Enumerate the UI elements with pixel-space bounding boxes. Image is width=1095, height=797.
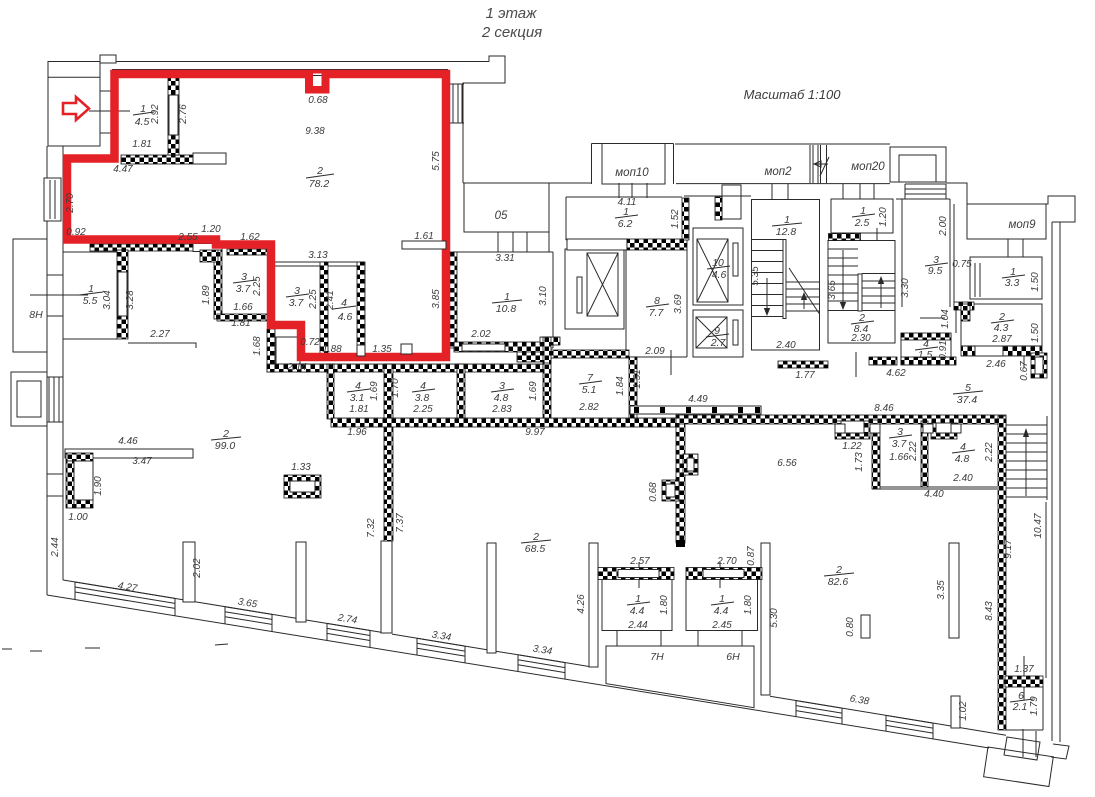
svg-text:2.14: 2.14 xyxy=(286,362,307,373)
svg-text:8Н: 8Н xyxy=(29,309,43,321)
svg-text:моп9: моп9 xyxy=(1008,219,1036,231)
svg-text:моп10: моп10 xyxy=(615,167,649,179)
svg-text:1.73: 1.73 xyxy=(854,452,865,472)
svg-text:9.5: 9.5 xyxy=(928,265,943,277)
svg-text:4.6: 4.6 xyxy=(338,311,353,323)
svg-text:5.35: 5.35 xyxy=(750,266,761,286)
svg-text:4.26: 4.26 xyxy=(576,594,587,614)
svg-text:10.8: 10.8 xyxy=(496,303,517,315)
svg-text:4.8: 4.8 xyxy=(494,392,509,404)
svg-text:2.25: 2.25 xyxy=(308,289,319,310)
svg-text:2.22: 2.22 xyxy=(984,442,995,463)
svg-text:0.91: 0.91 xyxy=(938,340,949,359)
svg-text:9.38: 9.38 xyxy=(305,126,325,137)
svg-text:7.32: 7.32 xyxy=(366,518,377,538)
svg-text:1.50: 1.50 xyxy=(1030,272,1041,292)
svg-text:3.8: 3.8 xyxy=(415,392,430,404)
svg-text:2.09: 2.09 xyxy=(644,346,665,357)
svg-text:12.8: 12.8 xyxy=(776,226,797,238)
svg-text:4.8: 4.8 xyxy=(955,453,970,465)
svg-text:1.81: 1.81 xyxy=(132,139,151,150)
svg-text:2: 2 xyxy=(316,165,323,177)
svg-text:1.00: 1.00 xyxy=(68,512,88,523)
svg-text:9.17: 9.17 xyxy=(1003,539,1014,559)
svg-text:2.00: 2.00 xyxy=(938,216,949,237)
svg-text:6Н: 6Н xyxy=(726,651,740,663)
svg-text:99.0: 99.0 xyxy=(215,440,236,452)
svg-text:2.5: 2.5 xyxy=(854,217,870,229)
svg-text:5.5: 5.5 xyxy=(83,295,98,307)
svg-text:05: 05 xyxy=(495,210,508,222)
svg-text:1.69: 1.69 xyxy=(369,381,380,401)
svg-text:7.37: 7.37 xyxy=(395,513,406,533)
svg-text:2.70: 2.70 xyxy=(716,556,737,567)
svg-text:2.57: 2.57 xyxy=(629,556,650,567)
svg-text:3.10: 3.10 xyxy=(538,286,549,306)
svg-text:1.04: 1.04 xyxy=(940,309,951,329)
svg-text:2.92: 2.92 xyxy=(150,104,161,125)
svg-text:2.27: 2.27 xyxy=(149,329,170,340)
svg-text:0.92: 0.92 xyxy=(66,227,86,238)
svg-text:2.40: 2.40 xyxy=(775,340,796,351)
svg-text:4.40: 4.40 xyxy=(924,489,944,500)
svg-text:2.44: 2.44 xyxy=(50,537,61,558)
svg-text:1.88: 1.88 xyxy=(322,344,342,355)
svg-text:1.20: 1.20 xyxy=(878,207,889,227)
svg-text:2.82: 2.82 xyxy=(578,402,599,413)
svg-text:1.66: 1.66 xyxy=(233,302,253,313)
svg-text:1.68: 1.68 xyxy=(252,336,263,356)
svg-text:2.25: 2.25 xyxy=(412,404,433,415)
svg-text:3.7: 3.7 xyxy=(236,283,252,295)
svg-text:1.20: 1.20 xyxy=(201,224,221,235)
svg-text:3.7: 3.7 xyxy=(289,297,305,309)
svg-text:7Н: 7Н xyxy=(650,651,664,663)
svg-text:5.75: 5.75 xyxy=(431,151,442,171)
svg-text:2.83: 2.83 xyxy=(491,404,512,415)
svg-text:3.30: 3.30 xyxy=(900,278,911,298)
svg-text:0.80: 0.80 xyxy=(845,617,856,637)
svg-text:3.1: 3.1 xyxy=(350,392,365,404)
svg-text:4.3: 4.3 xyxy=(994,322,1009,334)
svg-text:2.55: 2.55 xyxy=(177,232,198,243)
svg-text:6.56: 6.56 xyxy=(777,458,797,469)
svg-text:1 этаж: 1 этаж xyxy=(486,5,538,22)
svg-text:2.46: 2.46 xyxy=(985,359,1006,370)
svg-text:7.7: 7.7 xyxy=(649,307,665,319)
svg-text:1.61: 1.61 xyxy=(414,231,433,242)
svg-text:3.31: 3.31 xyxy=(495,253,514,264)
svg-text:3.65: 3.65 xyxy=(827,280,838,300)
svg-text:2.22: 2.22 xyxy=(908,441,919,462)
svg-text:3.35: 3.35 xyxy=(936,580,947,600)
svg-text:1.90: 1.90 xyxy=(93,476,104,496)
svg-text:2.40: 2.40 xyxy=(952,473,973,484)
svg-text:2.44: 2.44 xyxy=(627,620,648,631)
svg-text:1.50: 1.50 xyxy=(1030,323,1041,343)
svg-text:2 секция: 2 секция xyxy=(481,24,542,41)
svg-text:3.13: 3.13 xyxy=(308,250,328,261)
svg-text:2.02: 2.02 xyxy=(470,329,491,340)
svg-text:1.81: 1.81 xyxy=(349,404,368,415)
svg-text:1.33: 1.33 xyxy=(291,462,311,473)
svg-text:82.6: 82.6 xyxy=(828,576,849,588)
svg-text:1.80: 1.80 xyxy=(659,595,670,615)
svg-text:8.43: 8.43 xyxy=(984,601,995,621)
svg-text:37.4: 37.4 xyxy=(957,394,978,406)
svg-text:2.30: 2.30 xyxy=(850,333,871,344)
svg-text:3.69: 3.69 xyxy=(673,294,684,314)
svg-text:1.22: 1.22 xyxy=(842,441,862,452)
svg-text:4.46: 4.46 xyxy=(118,436,138,447)
svg-text:1.66: 1.66 xyxy=(889,452,909,463)
svg-text:3.85: 3.85 xyxy=(431,289,442,309)
svg-text:4.47: 4.47 xyxy=(113,164,133,175)
svg-text:2.25: 2.25 xyxy=(252,276,263,297)
svg-text:3.7: 3.7 xyxy=(892,438,908,450)
svg-text:1.62: 1.62 xyxy=(240,232,260,243)
svg-text:моп2: моп2 xyxy=(764,166,792,178)
svg-text:3.28: 3.28 xyxy=(125,290,136,310)
svg-text:1.5: 1.5 xyxy=(918,349,933,361)
svg-text:4.49: 4.49 xyxy=(688,394,708,405)
svg-text:1.96: 1.96 xyxy=(347,427,367,438)
svg-text:8.46: 8.46 xyxy=(874,403,894,414)
svg-text:2.70: 2.70 xyxy=(65,193,76,214)
svg-text:1.69: 1.69 xyxy=(528,381,539,401)
svg-text:2.41: 2.41 xyxy=(325,290,336,310)
svg-text:1.77: 1.77 xyxy=(795,370,815,381)
svg-text:2.02: 2.02 xyxy=(192,558,203,579)
svg-text:0.72: 0.72 xyxy=(300,337,320,348)
svg-text:1.37: 1.37 xyxy=(1014,664,1034,675)
svg-text:0.87: 0.87 xyxy=(746,546,757,566)
svg-text:1.35: 1.35 xyxy=(372,344,392,355)
svg-text:2.45: 2.45 xyxy=(711,620,732,631)
svg-text:0.67: 0.67 xyxy=(1019,361,1030,381)
svg-text:1.89: 1.89 xyxy=(201,285,212,305)
svg-text:Масштаб 1:100: Масштаб 1:100 xyxy=(744,87,842,102)
svg-text:1.02: 1.02 xyxy=(958,701,969,721)
svg-text:4.4: 4.4 xyxy=(630,605,645,617)
svg-text:4.5: 4.5 xyxy=(135,116,150,128)
svg-text:2.76: 2.76 xyxy=(178,104,189,125)
svg-text:10.47: 10.47 xyxy=(1033,513,1044,538)
svg-text:1.52: 1.52 xyxy=(670,209,681,229)
svg-text:4.62: 4.62 xyxy=(886,368,906,379)
svg-text:4.4: 4.4 xyxy=(714,605,729,617)
svg-text:1.80: 1.80 xyxy=(743,595,754,615)
svg-text:6.2: 6.2 xyxy=(618,218,633,230)
svg-text:2.7: 2.7 xyxy=(710,337,727,349)
svg-text:0.68: 0.68 xyxy=(648,482,659,502)
svg-text:68.5: 68.5 xyxy=(525,543,546,555)
svg-text:1.84: 1.84 xyxy=(615,376,626,396)
svg-text:4.11: 4.11 xyxy=(618,197,637,208)
svg-text:1.70: 1.70 xyxy=(390,378,401,398)
svg-text:3.47: 3.47 xyxy=(132,456,152,467)
svg-text:1.51: 1.51 xyxy=(632,369,643,388)
svg-text:3.04: 3.04 xyxy=(102,290,113,310)
svg-text:2.87: 2.87 xyxy=(991,334,1012,345)
svg-text:4.6: 4.6 xyxy=(712,269,727,281)
svg-text:0.75: 0.75 xyxy=(952,259,972,270)
svg-text:моп20: моп20 xyxy=(851,161,885,173)
svg-text:78.2: 78.2 xyxy=(309,178,330,190)
svg-text:0.68: 0.68 xyxy=(308,95,328,106)
svg-text:1.81: 1.81 xyxy=(231,318,250,329)
svg-text:9.97: 9.97 xyxy=(525,427,545,438)
svg-text:3.3: 3.3 xyxy=(1005,277,1020,289)
svg-text:2.1: 2.1 xyxy=(1012,701,1028,713)
svg-text:5.1: 5.1 xyxy=(582,384,597,396)
svg-text:1.79: 1.79 xyxy=(1029,696,1040,716)
svg-text:5.30: 5.30 xyxy=(769,608,780,628)
